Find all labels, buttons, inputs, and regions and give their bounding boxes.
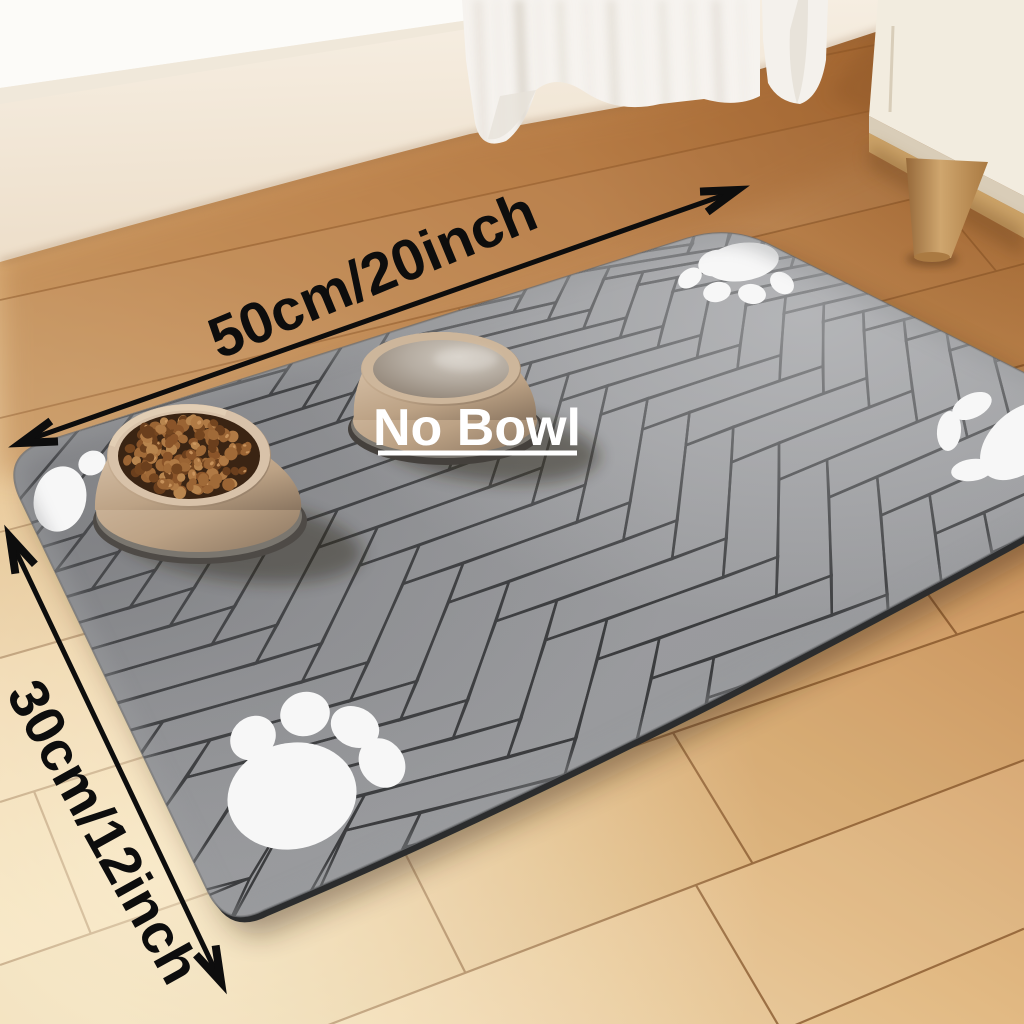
svg-text:No Bowl: No Bowl: [373, 399, 581, 457]
